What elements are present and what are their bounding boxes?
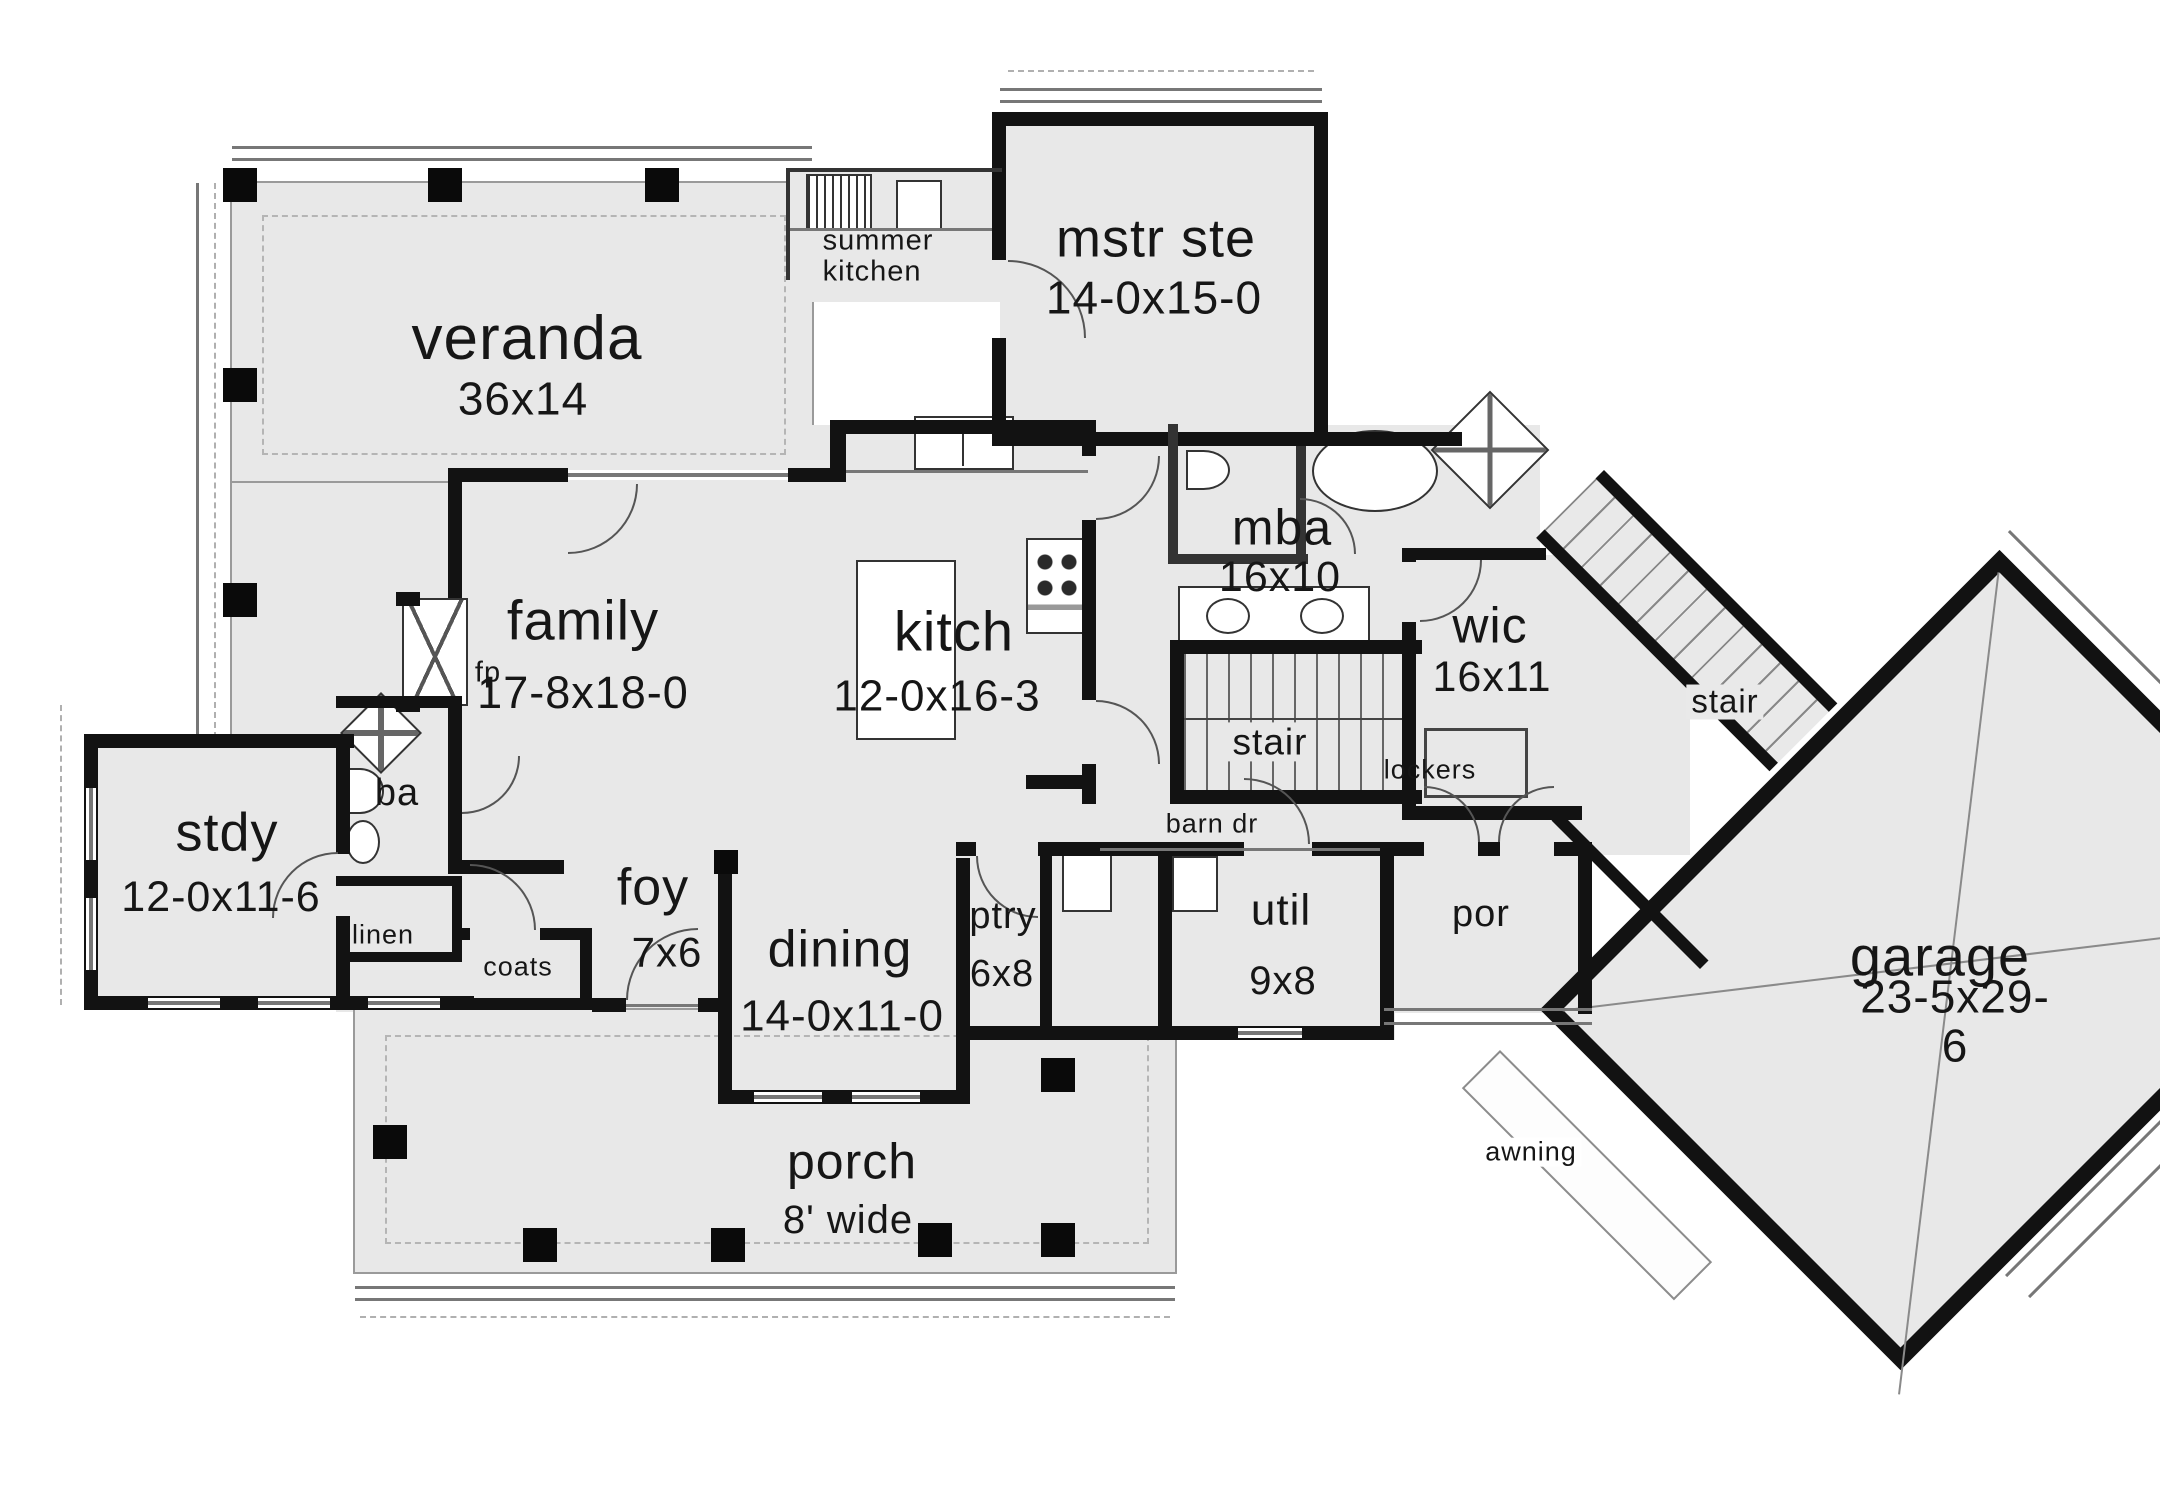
beam-line bbox=[232, 146, 812, 149]
label-util-dims: 9x8 bbox=[1249, 960, 1317, 1002]
label-kitch-dims: 12-0x16-3 bbox=[833, 674, 1040, 721]
wall-segment bbox=[992, 112, 1328, 126]
beam-line bbox=[232, 158, 812, 161]
wall-segment bbox=[452, 928, 470, 940]
label-kitch: kitch bbox=[894, 601, 1014, 660]
barn-door-track bbox=[1100, 848, 1380, 851]
wall-segment bbox=[1040, 842, 1052, 1040]
wall-segment bbox=[1082, 520, 1096, 700]
por-edge-line bbox=[1384, 1008, 1592, 1011]
wall-segment bbox=[1170, 640, 1422, 654]
label-mba-dims: 16x10 bbox=[1219, 555, 1341, 601]
wall-segment bbox=[448, 860, 564, 874]
wall-segment bbox=[718, 858, 732, 1104]
fixture-water-heater bbox=[1062, 850, 1112, 912]
post bbox=[711, 1228, 745, 1262]
beam-line bbox=[1000, 88, 1322, 91]
window bbox=[368, 998, 440, 1008]
post bbox=[1041, 1058, 1075, 1092]
counter-line bbox=[838, 470, 1088, 473]
label-summer-kitchen: summer kitchen bbox=[823, 225, 934, 286]
label-foy: foy bbox=[617, 860, 689, 915]
wall-segment bbox=[336, 952, 462, 962]
label-veranda: veranda bbox=[411, 306, 642, 372]
threshold-line bbox=[626, 1004, 698, 1007]
wall-segment bbox=[1082, 764, 1096, 804]
overhang-dashed bbox=[360, 1316, 1170, 1318]
label-dining-dims: 14-0x11-0 bbox=[740, 994, 944, 1041]
post bbox=[714, 850, 738, 874]
label-coats: coats bbox=[483, 953, 553, 982]
label-family-dims: 17-8x18-0 bbox=[477, 669, 689, 717]
window bbox=[568, 470, 788, 480]
fixture-outdoor-appliance bbox=[896, 180, 942, 230]
label-fp: fp bbox=[475, 658, 501, 689]
post bbox=[223, 583, 257, 617]
wall-segment bbox=[336, 876, 462, 886]
label-mba: mba bbox=[1232, 502, 1332, 555]
label-family: family bbox=[507, 590, 659, 649]
label-garage-dims: 23-5x29-6 bbox=[1853, 972, 2058, 1070]
label-awning: awning bbox=[1481, 1138, 1581, 1167]
post bbox=[1041, 1223, 1075, 1257]
wall-segment bbox=[396, 592, 420, 606]
post bbox=[223, 368, 257, 402]
wall-segment bbox=[448, 468, 568, 482]
por-step-line bbox=[1384, 1022, 1592, 1025]
label-stair-main: stair bbox=[1227, 722, 1314, 761]
post bbox=[223, 168, 257, 202]
wall-segment bbox=[1170, 640, 1184, 804]
label-stair-garage: stair bbox=[1686, 685, 1763, 720]
wall-segment bbox=[830, 420, 1096, 434]
window bbox=[86, 788, 96, 860]
beam-line bbox=[1000, 100, 1322, 103]
wall-segment bbox=[1082, 420, 1096, 456]
wall-segment bbox=[1478, 842, 1500, 856]
label-wic-dims: 16x11 bbox=[1433, 655, 1552, 701]
label-foy-dims: 7x6 bbox=[632, 931, 703, 976]
post bbox=[428, 168, 462, 202]
label-util: util bbox=[1251, 888, 1311, 935]
fixture-range bbox=[1026, 538, 1084, 634]
post bbox=[373, 1125, 407, 1159]
wall-segment bbox=[956, 858, 970, 1104]
wall-segment bbox=[1314, 112, 1328, 446]
wall-segment bbox=[1578, 842, 1592, 1014]
beam-line bbox=[196, 183, 199, 743]
wall-segment bbox=[1380, 842, 1424, 856]
wall-segment bbox=[1416, 548, 1546, 560]
wall-segment bbox=[1402, 548, 1416, 562]
label-mstr-ste: mstr ste bbox=[1056, 210, 1256, 267]
fixture-sink-ba bbox=[346, 820, 380, 864]
overhang-dashed bbox=[214, 183, 216, 738]
wall-segment bbox=[1026, 775, 1084, 789]
fixture-washer bbox=[1172, 856, 1218, 912]
wall-segment bbox=[592, 998, 626, 1012]
wall-thin bbox=[786, 168, 1002, 172]
wall-segment bbox=[448, 468, 462, 616]
porch-ceiling-dashed bbox=[385, 1035, 1149, 1244]
label-ptry: ptry bbox=[969, 896, 1036, 936]
wall-segment bbox=[336, 734, 350, 854]
wall-thin bbox=[786, 168, 790, 280]
label-barn-dr: barn dr bbox=[1166, 810, 1259, 839]
label-ptry-dims: 6x8 bbox=[970, 954, 1034, 994]
label-veranda-dims: 36x14 bbox=[458, 375, 588, 424]
label-linen: linen bbox=[352, 921, 414, 950]
window bbox=[1238, 1028, 1302, 1038]
window bbox=[86, 898, 96, 970]
wall-segment bbox=[448, 700, 462, 874]
fixture-sink-oval bbox=[1206, 598, 1250, 634]
floor-plan: veranda 36x14 summer kitchen mstr ste 14… bbox=[0, 0, 2160, 1488]
label-lockers: lockers bbox=[1384, 756, 1477, 785]
wall-segment bbox=[336, 696, 462, 708]
label-por: por bbox=[1452, 894, 1510, 934]
window bbox=[148, 998, 220, 1008]
post bbox=[918, 1223, 952, 1257]
fixture-sink-oval bbox=[1300, 598, 1344, 634]
overhang-dashed bbox=[60, 705, 62, 1005]
window bbox=[258, 998, 330, 1008]
label-wic: wic bbox=[1452, 600, 1527, 653]
fixture-grill bbox=[806, 174, 872, 230]
beam-line bbox=[355, 1286, 1175, 1289]
label-mstr-ste-dims: 14-0x15-0 bbox=[1046, 274, 1262, 323]
wall-thin bbox=[1168, 424, 1178, 564]
wall-segment bbox=[956, 1026, 1394, 1040]
window bbox=[754, 1092, 822, 1102]
label-ba: ba bbox=[375, 773, 419, 813]
post bbox=[645, 168, 679, 202]
label-stdy-dims: 12-0x11-6 bbox=[121, 875, 320, 921]
label-dining: dining bbox=[768, 922, 913, 977]
fixture-fireplace bbox=[402, 598, 468, 706]
wall-segment bbox=[956, 842, 976, 856]
wall-segment bbox=[1170, 790, 1422, 804]
wall-segment bbox=[452, 998, 592, 1010]
wall-segment bbox=[452, 876, 462, 962]
beam-line bbox=[355, 1298, 1175, 1301]
window bbox=[852, 1092, 920, 1102]
wall-segment bbox=[1402, 622, 1416, 818]
wall-segment bbox=[992, 112, 1006, 260]
label-porch-dims: 8' wide bbox=[783, 1199, 913, 1241]
post bbox=[523, 1228, 557, 1262]
wall-segment bbox=[992, 432, 1462, 446]
label-stdy: stdy bbox=[175, 804, 278, 861]
overhang-dashed bbox=[1008, 70, 1314, 72]
wall-segment bbox=[1158, 842, 1172, 1040]
label-porch: porch bbox=[787, 1136, 917, 1189]
stair-stringer bbox=[1184, 718, 1412, 720]
wall-segment bbox=[336, 916, 350, 1010]
wall-segment bbox=[84, 734, 354, 748]
